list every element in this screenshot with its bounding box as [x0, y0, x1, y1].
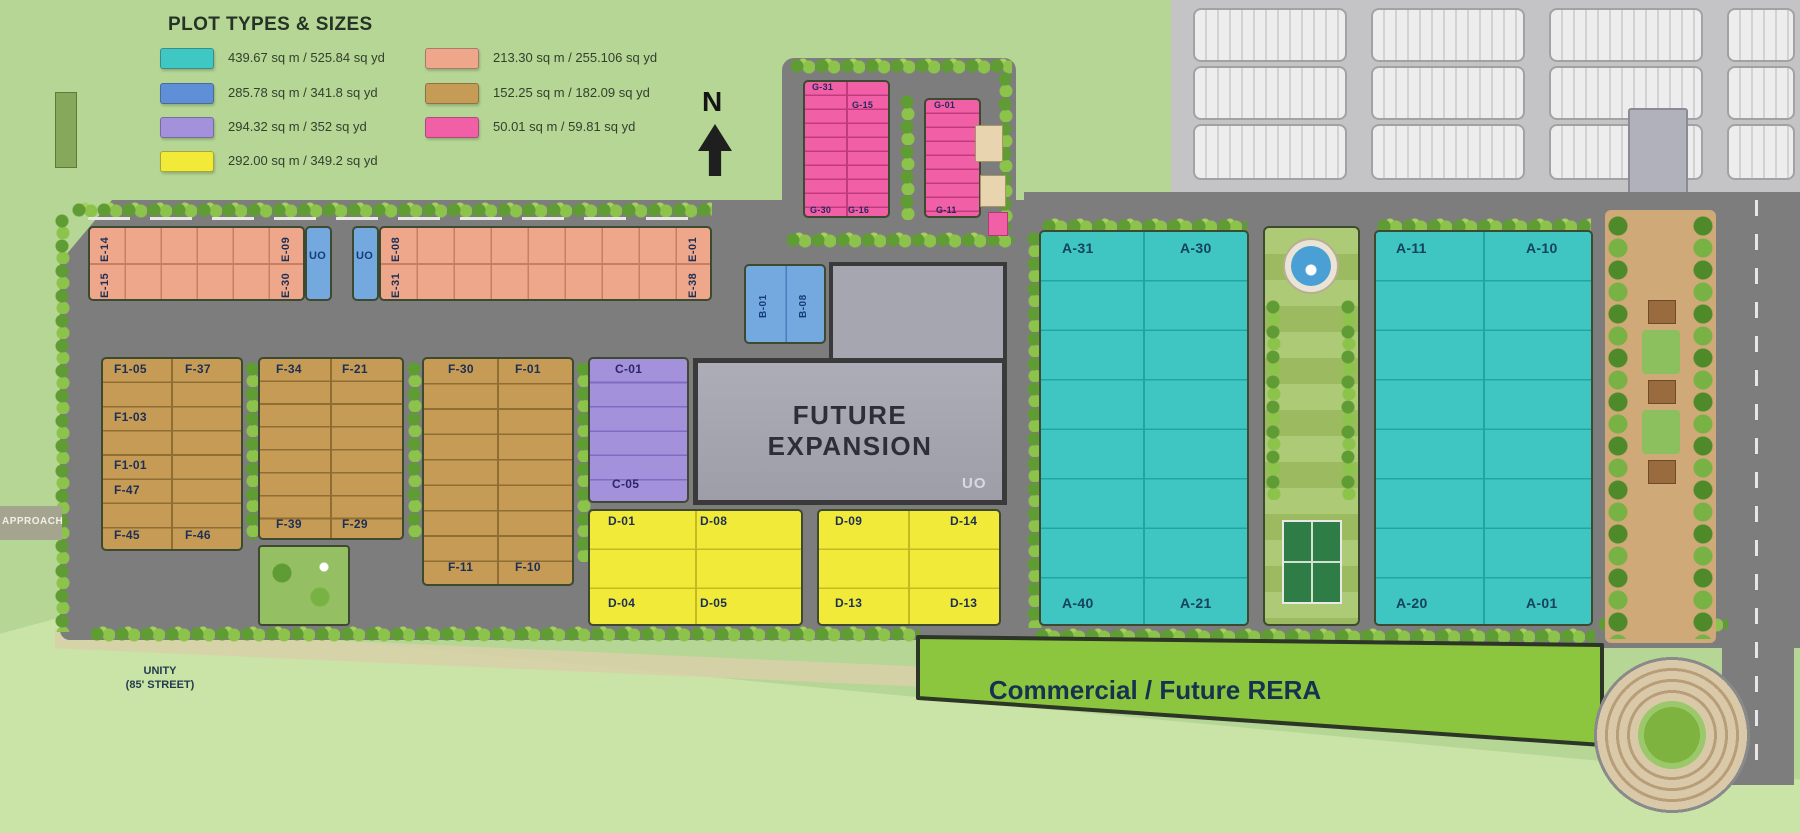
plot-f-39: F-39 [276, 517, 302, 531]
plot-e-31: E-31 [390, 266, 402, 298]
warehouse [1371, 66, 1525, 120]
plot-uo-2: UO [356, 250, 373, 262]
plot-f1-01: F1-01 [114, 458, 147, 472]
plot-block-g1 [803, 80, 890, 218]
plot-block-e-left [88, 226, 305, 301]
tree-line [790, 58, 1012, 74]
plot-d-01: D-01 [608, 514, 635, 528]
road-center-dashes [1755, 200, 1758, 760]
plot-a-21: A-21 [1180, 595, 1212, 611]
plot-block-g2 [924, 98, 981, 218]
compass-arrow-icon [698, 124, 732, 176]
warehouse [1193, 66, 1347, 120]
plot-c-01: C-01 [615, 362, 642, 376]
plot-block-a1 [1039, 230, 1249, 626]
site-plan-canvas: PLOT TYPES & SIZES 439.67 sq m / 525.84 … [0, 0, 1800, 833]
plot-block-uo-1 [305, 226, 332, 301]
street-name-line2: (85' STREET) [100, 678, 220, 692]
plot-f-47: F-47 [114, 483, 140, 497]
tree-line [406, 362, 423, 540]
plot-e-15: E-15 [99, 266, 111, 298]
legend-label: 294.32 sq m / 352 sq yd [228, 119, 367, 134]
tree-line [90, 626, 920, 642]
plot-d-13a: D-13 [835, 596, 862, 610]
plot-a-40: A-40 [1062, 595, 1094, 611]
future-expansion-upper [829, 262, 1007, 360]
plot-f1-03: F1-03 [114, 410, 147, 424]
street-name-label: UNITY (85' STREET) [100, 664, 220, 692]
approach-road-label: APPROACH [2, 516, 63, 527]
plot-block-b [744, 264, 826, 344]
commercial-label: Commercial / Future RERA [989, 675, 1322, 705]
tree-line [786, 232, 1014, 248]
plot-a-11: A-11 [1396, 240, 1427, 256]
plot-e-09: E-09 [280, 230, 292, 262]
warehouse [1727, 124, 1795, 180]
plot-f-21: F-21 [342, 362, 368, 376]
boulevard-lawn [1642, 330, 1680, 374]
plot-f1-05: F1-05 [114, 362, 147, 376]
legend-swatch-teal [160, 48, 214, 69]
tree-line [54, 214, 71, 632]
legend-label: 285.78 sq m / 341.8 sq yd [228, 85, 378, 100]
plot-a-20: A-20 [1396, 595, 1428, 611]
warehouse [1371, 124, 1525, 180]
boulevard-trees [1607, 214, 1629, 639]
plot-d-09: D-09 [835, 514, 862, 528]
plot-c-05: C-05 [612, 477, 639, 491]
plot-e-01: E-01 [687, 230, 699, 262]
legend-label: 152.25 sq m / 182.09 sq yd [493, 85, 650, 100]
plot-block-f3 [422, 357, 574, 586]
plot-e-14: E-14 [99, 230, 111, 262]
legend-label: 50.01 sq m / 59.81 sq yd [493, 119, 635, 134]
plot-d-13b: D-13 [950, 596, 977, 610]
plot-a-01: A-01 [1526, 595, 1558, 611]
boulevard-planter [1648, 460, 1676, 484]
plot-block-f2 [258, 357, 404, 540]
plot-block-uo-2 [352, 226, 379, 301]
warehouse [1727, 66, 1795, 120]
legend-swatch-pink [425, 117, 479, 138]
plot-a-30: A-30 [1180, 240, 1212, 256]
warehouse [1193, 8, 1347, 62]
plot-e-30: E-30 [280, 266, 292, 298]
plot-d-05: D-05 [700, 596, 727, 610]
plot-g-16: G-16 [848, 205, 869, 215]
plot-g-30: G-30 [810, 205, 831, 215]
plot-e-08: E-08 [390, 230, 402, 262]
commercial-strip: Commercial / Future RERA [915, 635, 1607, 760]
swimming-pool-water [1291, 246, 1331, 286]
plot-f-45: F-45 [114, 528, 140, 542]
plot-f-37: F-37 [185, 362, 211, 376]
plot-g-15: G-15 [852, 100, 873, 110]
plot-g-31: G-31 [812, 82, 833, 92]
plot-d-04: D-04 [608, 596, 635, 610]
legend-title: PLOT TYPES & SIZES [168, 14, 373, 36]
plot-block-e-right [379, 226, 712, 301]
plot-f-01: F-01 [515, 362, 541, 376]
plot-d-08: D-08 [700, 514, 727, 528]
plot-block-f1 [101, 357, 243, 551]
tree-line [72, 202, 712, 218]
plot-b-08: B-08 [798, 278, 809, 318]
boulevard-planter [1648, 380, 1676, 404]
legend-label: 439.67 sq m / 525.84 sq yd [228, 50, 385, 65]
plot-f-29: F-29 [342, 517, 368, 531]
plot-a-10: A-10 [1526, 240, 1558, 256]
small-pink-plot [988, 212, 1008, 236]
future-expansion-label: FUTURE EXPANSION [728, 400, 972, 462]
club-building [980, 175, 1006, 207]
warehouse [1371, 8, 1525, 62]
uo-note: UO [962, 475, 987, 492]
compass-north-label: N [702, 86, 722, 118]
legend-swatch-yellow [160, 151, 214, 172]
street-name-line1: UNITY [100, 664, 220, 678]
tree-line [899, 95, 916, 220]
plot-e-38: E-38 [687, 266, 699, 298]
plot-f-34: F-34 [276, 362, 302, 376]
tree-line [1340, 300, 1357, 500]
amphitheater [1582, 645, 1762, 825]
warehouse [1727, 8, 1795, 62]
legend-swatch-blue [160, 83, 214, 104]
warehouse [1549, 8, 1703, 62]
boulevard-trees [1692, 214, 1714, 639]
plot-f-11: F-11 [448, 560, 473, 574]
legend-swatch-tan [425, 83, 479, 104]
plot-d-14: D-14 [950, 514, 977, 528]
roadside-sign [55, 92, 77, 168]
plot-f-10: F-10 [515, 560, 541, 574]
plot-a-31: A-31 [1062, 240, 1094, 256]
tree-line [1265, 300, 1282, 500]
boulevard-lawn [1642, 410, 1680, 454]
tennis-court [1282, 520, 1342, 604]
legend-label: 213.30 sq m / 255.106 sq yd [493, 50, 657, 65]
plot-g-11: G-11 [936, 205, 957, 215]
plot-f-30: F-30 [448, 362, 474, 376]
plot-g-01: G-01 [934, 100, 955, 110]
pocket-park [258, 545, 350, 626]
boulevard-planter [1648, 300, 1676, 324]
club-building [975, 125, 1003, 162]
warehouse [1193, 124, 1347, 180]
legend-swatch-purple [160, 117, 214, 138]
plot-uo-1: UO [309, 250, 326, 262]
plot-block-a2 [1374, 230, 1593, 626]
legend-swatch-salmon [425, 48, 479, 69]
road-curb-dashes [88, 217, 708, 220]
plot-f-46: F-46 [185, 528, 211, 542]
legend-label: 292.00 sq m / 349.2 sq yd [228, 153, 378, 168]
plot-b-01: B-01 [758, 278, 769, 318]
